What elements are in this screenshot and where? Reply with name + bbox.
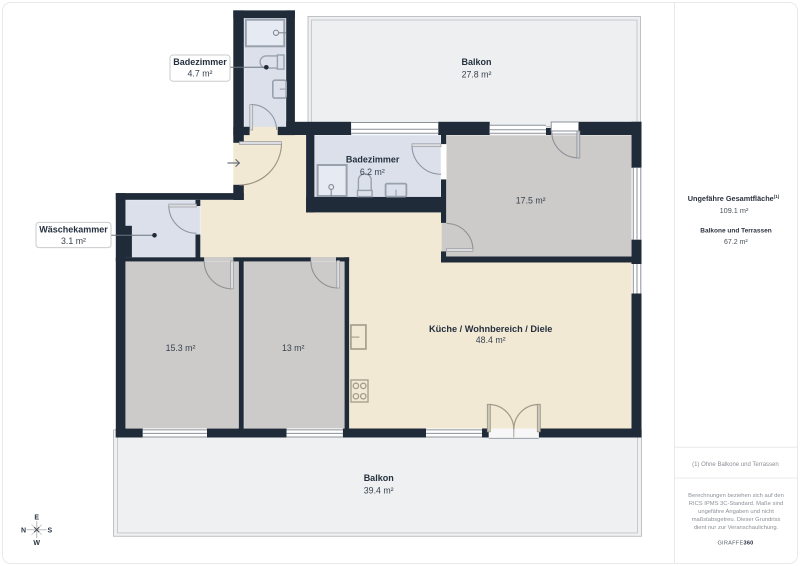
svg-text:Balkone und Terrassen: Balkone und Terrassen	[700, 227, 771, 234]
svg-text:dient nur zur Veranschaulichun: dient nur zur Veranschaulichung.	[694, 525, 779, 531]
svg-text:S: S	[47, 527, 52, 534]
svg-text:E: E	[34, 515, 39, 522]
svg-text:15.3 m²: 15.3 m²	[166, 343, 196, 353]
svg-text:Badezimmer: Badezimmer	[346, 155, 400, 165]
svg-text:27.8 m²: 27.8 m²	[462, 70, 492, 80]
svg-text:Badezimmer: Badezimmer	[173, 57, 227, 67]
svg-text:13 m²: 13 m²	[282, 343, 305, 353]
svg-text:48.4 m²: 48.4 m²	[476, 335, 506, 345]
svg-text:109.1 m²: 109.1 m²	[720, 206, 749, 215]
svg-text:67.2 m²: 67.2 m²	[724, 239, 748, 246]
svg-text:6.2 m²: 6.2 m²	[360, 167, 385, 177]
svg-text:W: W	[33, 540, 40, 547]
svg-text:Balkon: Balkon	[461, 57, 491, 67]
svg-text:maßstabsgetreu. Dieser Grundri: maßstabsgetreu. Dieser Grundriss	[692, 517, 781, 523]
svg-text:4.7 m²: 4.7 m²	[188, 69, 213, 79]
svg-text:3.1 m²: 3.1 m²	[61, 236, 86, 246]
svg-text:39.4 m²: 39.4 m²	[364, 485, 394, 495]
svg-text:Balkon: Balkon	[364, 473, 394, 483]
svg-text:N: N	[21, 527, 26, 534]
svg-text:Berechnungen beziehen sich auf: Berechnungen beziehen sich auf den	[688, 493, 784, 499]
svg-text:ungefähre Angaben und nicht: ungefähre Angaben und nicht	[698, 509, 774, 515]
svg-text:(1) Ohne Balkone und Terrassen: (1) Ohne Balkone und Terrassen	[692, 462, 779, 468]
svg-text:Wäschekammer: Wäschekammer	[39, 225, 108, 235]
svg-text:17.5 m²: 17.5 m²	[516, 196, 546, 206]
svg-text:RICS IPMS 3C-Standard. Maße si: RICS IPMS 3C-Standard. Maße sind	[689, 501, 783, 507]
svg-text:Ungefähre Gesamtfläche(1): Ungefähre Gesamtfläche(1)	[688, 194, 780, 203]
svg-text:GIRAFFE360: GIRAFFE360	[717, 540, 753, 546]
svg-text:Küche / Wohnbereich / Diele: Küche / Wohnbereich / Diele	[429, 324, 552, 334]
